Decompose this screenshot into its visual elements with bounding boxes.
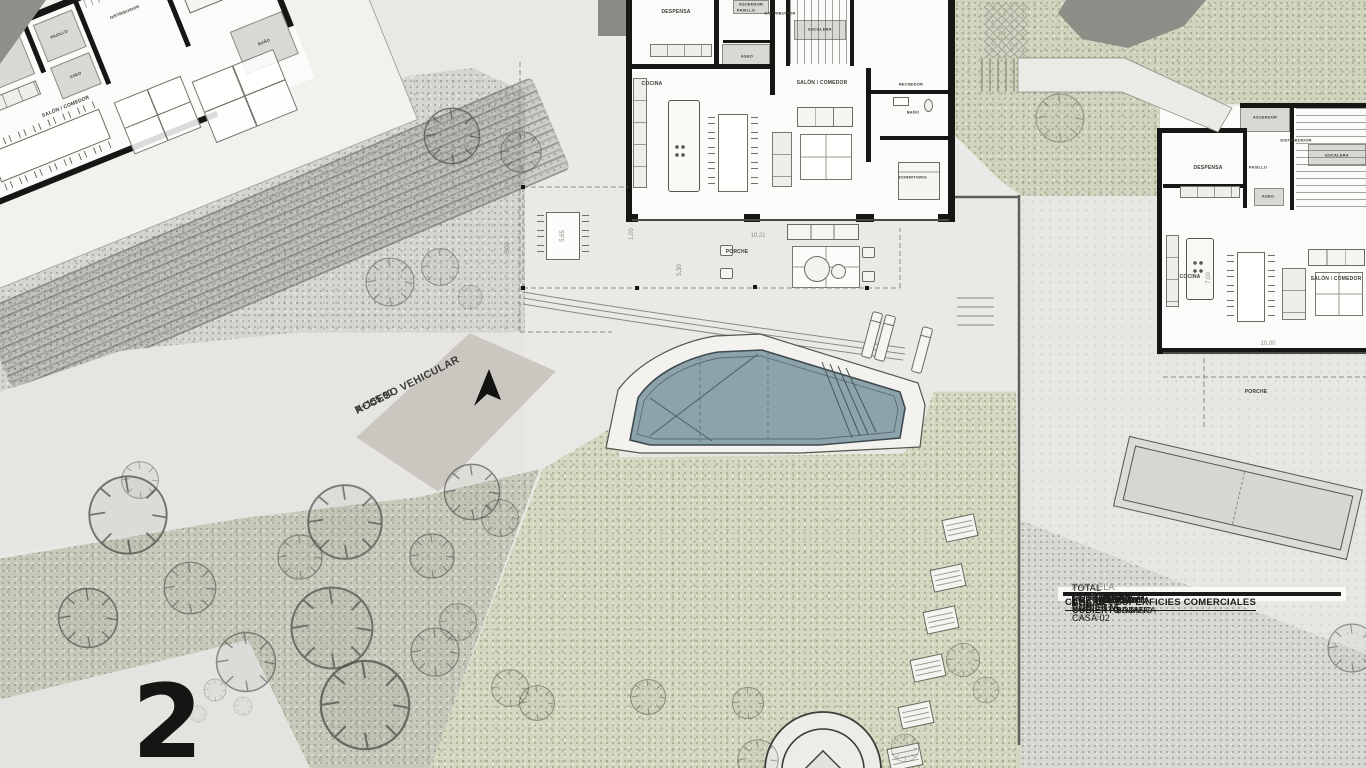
- house-02-rug: [800, 134, 852, 180]
- room-label: BAÑO: [907, 110, 920, 115]
- room-label: PORCHE: [726, 249, 749, 255]
- porch-armchair: [720, 268, 733, 279]
- sun-loungers: [861, 311, 933, 373]
- planter-pool: [1113, 436, 1363, 560]
- lawn: [430, 380, 1022, 768]
- room-label: SALÓN / COMEDOR: [797, 80, 848, 86]
- house-03-kitchen-counter: [1166, 235, 1179, 307]
- stepping-stone: [923, 606, 959, 634]
- pool-fold-lines: [650, 354, 758, 441]
- room-label: SALÓN / COMEDOR: [1311, 276, 1362, 282]
- room-label: COCINA: [1180, 274, 1201, 280]
- access-line2: N+155.00: [353, 387, 395, 416]
- house-02-bed: [898, 162, 940, 200]
- room-label: ESCALERA: [808, 27, 832, 32]
- house-02-shelves: [650, 44, 712, 57]
- tree-icon: [631, 680, 666, 715]
- access-vehicular-label: ACCESO VEHICULAR N+155.00: [353, 338, 487, 406]
- porch-armchair: [862, 247, 875, 258]
- stepping-stones: [887, 514, 978, 768]
- house-02-glass-wall: [632, 219, 949, 221]
- tree-icon: [308, 485, 382, 559]
- tree-icon: [278, 535, 322, 579]
- house-02-sink: [893, 97, 909, 106]
- dimension-label: 10,00: [1260, 341, 1275, 347]
- house-03-chairs: [1268, 255, 1275, 319]
- house-03-sofa: [1308, 249, 1365, 266]
- tree-icon: [891, 734, 919, 762]
- tree-icon: [482, 500, 519, 537]
- room-label: ASEO: [741, 54, 753, 59]
- pool-water: [630, 350, 905, 445]
- house-01-plan: DESPENSA PASILLO ASEO ESCALERA DISTRIBUI…: [0, 0, 432, 313]
- porch-armchair: [862, 271, 875, 282]
- house-02-wc: [924, 99, 933, 112]
- deck-step-lines: [523, 292, 905, 360]
- room-label: ESCALERA: [1325, 153, 1349, 158]
- house-02-side-shelf: [772, 132, 792, 187]
- tree-icon: [292, 588, 373, 669]
- porch-chairs: [537, 215, 544, 259]
- tree-icon: [410, 534, 454, 578]
- surface-table: CASA 02 - SUPERFICIES COMERCIALES SOLAR …: [1063, 592, 1341, 596]
- house-03-side-shelf: [1282, 268, 1306, 320]
- dimension-label: 5,00: [505, 242, 511, 254]
- house-03-dining-table: [1237, 252, 1265, 322]
- pool: [606, 334, 925, 453]
- stepping-stone: [898, 701, 934, 729]
- room-label: DISTRIBUIDOR: [1280, 138, 1311, 143]
- tree-icon: [422, 249, 459, 286]
- porch-chairs: [582, 215, 589, 259]
- dimension-label: 10,21: [750, 233, 765, 239]
- tree-icon: [321, 661, 409, 749]
- dimension-label: 1,00: [629, 228, 635, 240]
- southeast-gravel: [1020, 515, 1366, 768]
- dimension-label: 5,65: [560, 230, 566, 242]
- pool-lane-lines: [700, 352, 768, 444]
- room-label: PASILLO: [737, 8, 755, 13]
- stepping-stone: [930, 564, 966, 592]
- room-label: PORCHE: [1245, 389, 1268, 395]
- pool-deck: [606, 334, 925, 453]
- room-label: DISTRIBUIDOR: [764, 11, 795, 16]
- porch-round-table-small: [831, 264, 846, 279]
- house-03-shelves: [1180, 186, 1240, 198]
- room-label: ASCENSOR: [1253, 115, 1277, 120]
- house-02-sofa: [797, 107, 853, 127]
- tree-icon: [458, 285, 482, 309]
- house-02-chairs: [751, 117, 758, 189]
- tree-icon: [122, 462, 159, 499]
- room-label: COCINA: [642, 81, 663, 87]
- dimension-label: 5,30: [677, 264, 683, 276]
- house-02-stairs: [790, 0, 850, 64]
- tree-icon: [204, 679, 226, 701]
- room-label: ASEO: [1262, 194, 1274, 199]
- hillside-garden: [0, 460, 545, 768]
- tree-icon: [1036, 94, 1084, 142]
- tree-icon: [424, 108, 479, 163]
- site-plan-canvas: DESPENSA PASILLO ASEO ESCALERA DISTRIBUI…: [0, 0, 1366, 768]
- hob-icon: [673, 143, 687, 161]
- tree-icon: [492, 670, 529, 707]
- house-02-dining-table: [718, 114, 748, 192]
- room-label: DESPENSA: [661, 9, 690, 15]
- plan-number: 2: [132, 672, 203, 768]
- house-03-kitchen-island: [1186, 238, 1214, 300]
- tree-icon: [164, 562, 216, 614]
- stepping-stone: [942, 514, 978, 542]
- tree-icon: [366, 258, 414, 306]
- house-03-stairs: [1296, 108, 1366, 208]
- house-03-chairs: [1227, 255, 1234, 319]
- garden-stairs: [982, 58, 1014, 92]
- room-label: DESPENSA: [1193, 165, 1222, 171]
- terrace-steps: [957, 298, 994, 325]
- tree-icon: [1328, 624, 1366, 672]
- tree-icon: [946, 643, 979, 676]
- room-label: DORMITORIO: [899, 175, 927, 180]
- terrain-dark-blob: [1058, 0, 1206, 48]
- pergola-lattice: [984, 2, 1028, 58]
- porch-round-table: [804, 256, 830, 282]
- tree-icon: [440, 604, 477, 641]
- tree-icon: [411, 628, 459, 676]
- room-label: RECIBIDOR: [899, 82, 923, 87]
- house-03-glass-wall: [1163, 352, 1366, 354]
- porch-sofa: [787, 224, 859, 240]
- tree-icon: [234, 697, 252, 715]
- stepping-stone: [910, 654, 946, 682]
- tree-icon: [444, 464, 499, 519]
- tree-icon: [973, 677, 999, 703]
- house-02-kitchen-counter: [633, 78, 647, 188]
- stepping-stone: [887, 743, 923, 768]
- pool-water-inner-edge: [637, 356, 898, 439]
- room-label: PASILLO: [1249, 165, 1267, 170]
- tree-icon: [520, 686, 555, 721]
- table-cell-label: PORCHE CUBIERTO: [1072, 595, 1120, 615]
- tree-icon: [59, 589, 118, 648]
- tree-icon: [217, 633, 276, 692]
- tree-icon: [89, 476, 166, 553]
- room-label: ASCENSOR: [739, 2, 763, 7]
- house-02-chairs: [708, 117, 715, 189]
- access-arrow-icon: [474, 369, 501, 406]
- fire-pit-seating: [765, 712, 881, 768]
- tree-icon: [738, 740, 778, 768]
- pool-steps: [822, 362, 876, 438]
- dimension-label: 7,00: [1206, 272, 1212, 284]
- house-02-kitchen-island: [668, 100, 700, 192]
- tree-icon: [501, 132, 541, 172]
- table-row: PORCHE CUBIERTO: [1065, 594, 1072, 614]
- tree-icon: [732, 687, 763, 718]
